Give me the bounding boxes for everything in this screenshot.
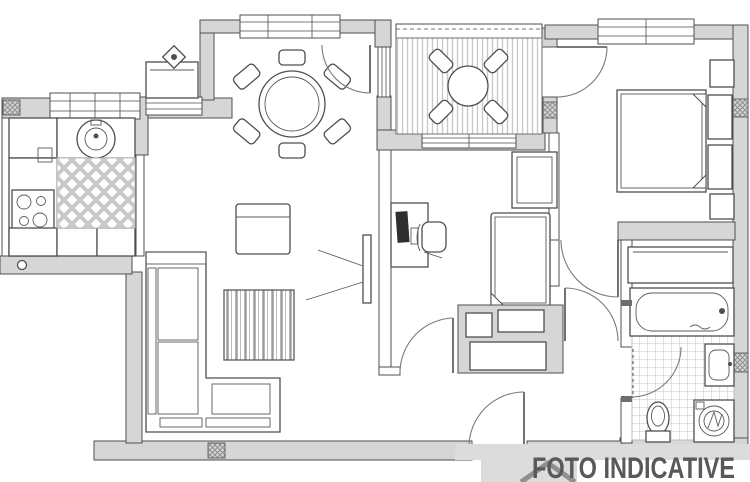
bedroom-bottom-wall — [618, 222, 735, 240]
door-stop — [621, 396, 632, 402]
dining-chair — [232, 117, 262, 145]
door-stop — [621, 300, 632, 306]
dining-window — [240, 15, 340, 38]
balcony-table — [448, 66, 488, 106]
valve-knob-icon — [18, 261, 27, 270]
kitchen-right-thin-wall — [136, 155, 144, 256]
headboard-panel — [708, 145, 732, 189]
double-bed — [617, 90, 706, 192]
study-window — [422, 133, 516, 148]
rug — [224, 290, 294, 360]
entry-door-arc — [469, 392, 524, 447]
kitchen-counter — [97, 228, 135, 256]
kitchen-left-thin-wall — [2, 118, 9, 256]
kitchen-sink — [77, 120, 115, 158]
bedroom-balcony-door-arc — [557, 47, 607, 97]
faucet-icon — [719, 308, 725, 314]
study-door-arc — [400, 318, 453, 373]
watermark: FOTO INDICATIVE — [455, 444, 750, 482]
study-wardrobe — [512, 152, 557, 208]
bathroom-left-wall-lower — [621, 398, 632, 443]
tv-view-lines — [306, 250, 363, 300]
bathtub — [630, 288, 734, 336]
balcony-side-window — [378, 47, 390, 97]
kitchen — [9, 118, 135, 256]
balcony-left-wall-lower — [377, 96, 391, 134]
nightstand — [710, 194, 734, 219]
study-left-wall — [379, 150, 391, 375]
study-bedroom — [391, 152, 557, 307]
serving-window — [146, 97, 202, 115]
kitchen-tiled-floor — [57, 158, 135, 228]
master-bedroom — [617, 60, 734, 219]
wall-hatch-block — [733, 99, 748, 117]
dining-chair — [323, 117, 353, 145]
headboard-panel — [708, 95, 732, 139]
bottom-exterior-wall — [94, 441, 472, 460]
kitchen-counter — [9, 118, 57, 158]
monitor-icon — [396, 212, 409, 243]
dining-chair — [279, 143, 305, 158]
washing-machine — [694, 400, 734, 442]
dining-chair — [232, 63, 262, 91]
wall-hatch-block — [543, 102, 557, 118]
toilet — [646, 402, 670, 442]
watermark-text: FOTO INDICATIVE — [532, 452, 735, 482]
hall-closet — [458, 305, 563, 373]
dining-table — [259, 71, 325, 137]
bathroom — [621, 247, 734, 442]
wall-hatch-block — [208, 443, 225, 458]
kitchen-counter — [9, 228, 57, 256]
floor-plan-image: FOTO INDICATIVE — [0, 0, 750, 482]
coffee-cabinet — [236, 204, 290, 254]
dining-chair — [279, 50, 305, 65]
kitchen-window — [50, 93, 140, 119]
single-bed — [491, 213, 550, 307]
wall-hatch-block — [733, 353, 748, 372]
sideboard — [146, 46, 198, 98]
bedroom-window — [598, 19, 694, 44]
kitchen-counter — [57, 228, 97, 256]
storage-cabinet — [628, 247, 733, 283]
nightstand — [710, 60, 734, 87]
wall-hatch-block — [3, 100, 20, 115]
balcony-railing — [396, 24, 542, 39]
floor-plan: FOTO INDICATIVE — [0, 0, 750, 482]
drain-icon — [94, 134, 99, 139]
balcony-left-wall-upper — [375, 20, 391, 47]
tv — [306, 235, 371, 303]
study-bottom-wall-stub — [379, 367, 400, 375]
washbasin — [705, 344, 734, 386]
balcony — [396, 38, 542, 134]
living-area — [146, 204, 371, 432]
living-left-wall — [126, 272, 142, 443]
